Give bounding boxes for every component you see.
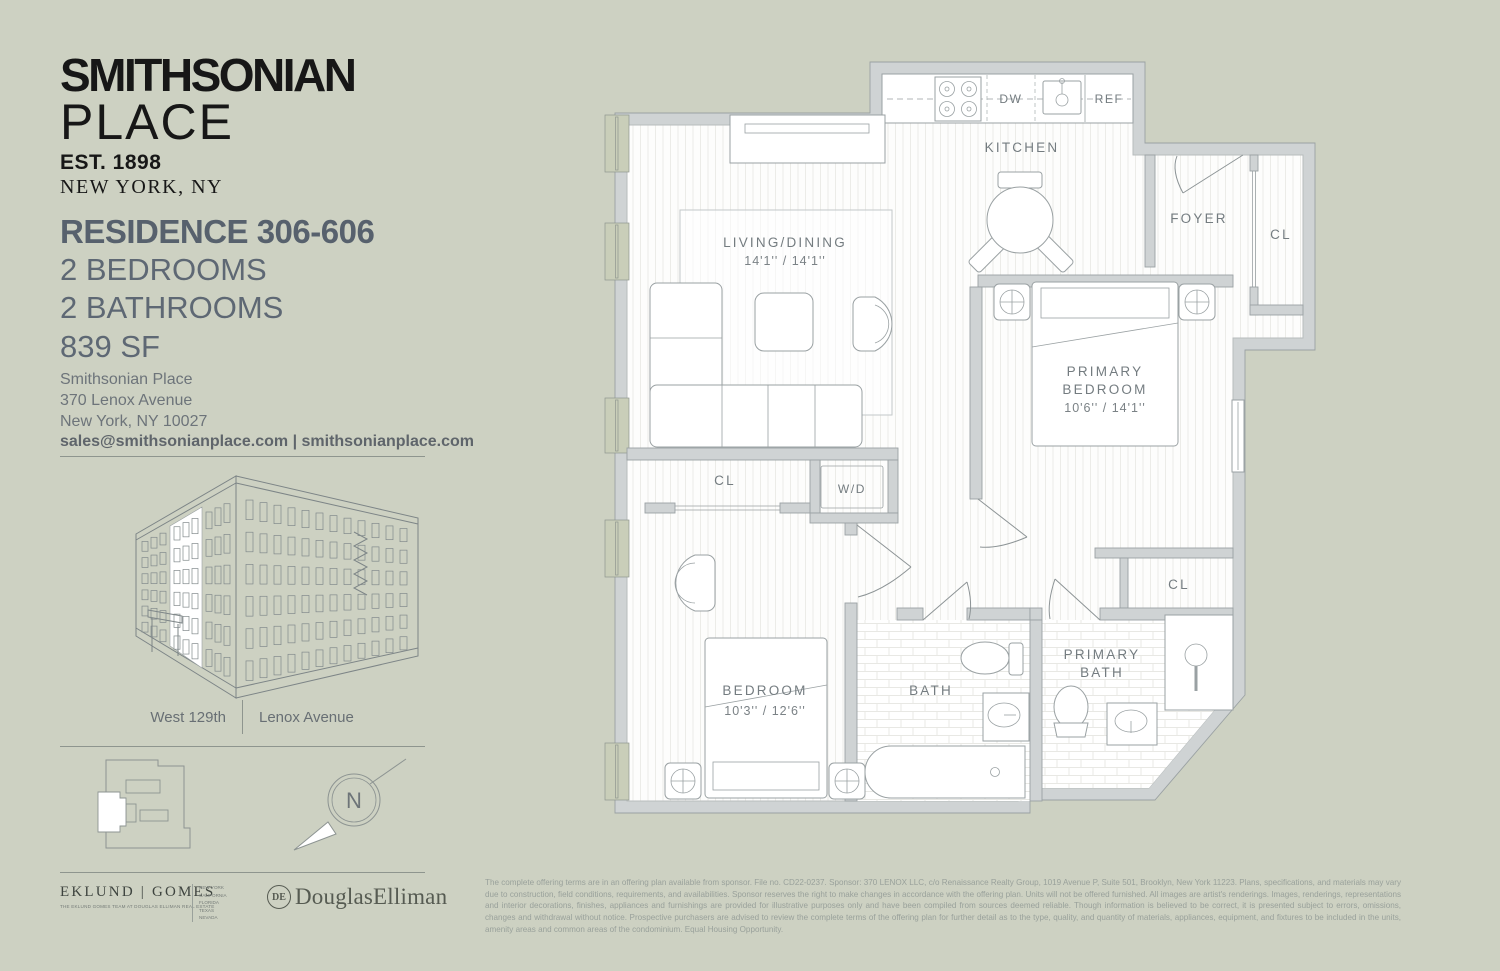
room-label-bath: BATH [909, 683, 953, 698]
site-plan [92, 754, 212, 866]
primary-window [1232, 400, 1244, 472]
sink-icon [983, 693, 1029, 741]
refrigerator-label: REF [1095, 92, 1124, 106]
residence-bedrooms: 2 BEDROOMS [60, 251, 374, 289]
brand-logo: SMITHSONIAN PLACE EST. 1898 NEW YORK, NY [60, 52, 355, 199]
de-monogram-icon: DE [267, 885, 291, 909]
kitchen-counter: DW REF [882, 74, 1133, 123]
room-label-hall-closet: CL [714, 473, 736, 488]
sink-icon [1107, 703, 1157, 745]
room-label-foyer: FOYER [1170, 211, 1228, 226]
douglas-elliman-logo: DE DouglasElliman [267, 884, 447, 910]
contact-name: Smithsonian Place [60, 370, 474, 391]
room-label-primary-bedroom-1: PRIMARY [1067, 364, 1144, 379]
nightstand [994, 284, 1030, 320]
nightstand [829, 763, 865, 799]
brand-name-line2: PLACE [60, 98, 355, 147]
contact-links[interactable]: sales@smithsonianplace.com | smithsonian… [60, 432, 474, 453]
room-label-primary-bath-2: BATH [1080, 665, 1124, 680]
bathtub-icon [865, 746, 1025, 798]
dishwasher-label: DW [999, 92, 1022, 106]
coffee-table [755, 293, 813, 351]
room-label-bedroom: BEDROOM [722, 683, 807, 698]
street-right-label: Lenox Avenue [243, 709, 425, 726]
street-labels: West 129th Lenox Avenue [60, 700, 425, 734]
room-label-primary-bath-1: PRIMARY [1064, 647, 1141, 662]
residence-title: RESIDENCE 306-606 [60, 213, 374, 251]
brand-established: EST. 1898 [60, 151, 355, 175]
contact-city: New York, NY 10027 [60, 412, 474, 433]
flyer-page: SMITHSONIAN PLACE EST. 1898 NEW YORK, NY… [0, 0, 1500, 971]
tv-console [730, 115, 885, 163]
room-dims-bedroom: 10'3'' / 12'6'' [724, 704, 805, 718]
compass-north-label: N [346, 788, 362, 813]
stove-icon [935, 77, 981, 121]
shower-icon [1165, 615, 1233, 710]
douglas-elliman-wordmark: DouglasElliman [295, 884, 447, 910]
brand-city: NEW YORK, NY [60, 176, 355, 199]
brand-name-line1: SMITHSONIAN [60, 52, 355, 98]
room-dims-primary-bedroom: 10'6'' / 14'1'' [1064, 401, 1145, 415]
street-left-label: West 129th [60, 709, 242, 726]
compass-icon: N [282, 756, 414, 864]
room-label-kitchen: KITCHEN [985, 140, 1060, 155]
room-label-washer-dryer: W/D [838, 482, 866, 496]
contact-block: Smithsonian Place 370 Lenox Avenue New Y… [60, 370, 474, 453]
north-arrow [294, 822, 336, 850]
room-label-living: LIVING/DINING [723, 235, 847, 250]
contact-street: 370 Lenox Avenue [60, 391, 474, 412]
divider-top [60, 456, 425, 457]
sink-icon [1043, 79, 1081, 115]
eklund-gomes-regions: NEW YORK CALIFORNIA FLORIDA TEXAS NEVADA [192, 884, 227, 922]
bed [705, 638, 827, 798]
room-label-primary-closet: CL [1168, 577, 1190, 592]
floor-plan: DW REF [595, 55, 1320, 875]
residence-info: RESIDENCE 306-606 2 BEDROOMS 2 BATHROOMS… [60, 213, 374, 366]
disclaimer-text: The complete offering terms are in an of… [485, 877, 1401, 936]
divider-bottom [60, 872, 425, 873]
site-unit-highlight [98, 792, 126, 832]
room-label-primary-bedroom-2: BEDROOM [1062, 382, 1147, 397]
residence-area: 839 SF [60, 328, 374, 366]
nightstand [1179, 284, 1215, 320]
building-illustration [118, 460, 434, 704]
residence-bathrooms: 2 BATHROOMS [60, 289, 374, 327]
toilet-icon [961, 642, 1023, 675]
site-row: N [60, 746, 425, 872]
room-label-foyer-closet: CL [1270, 227, 1292, 242]
toilet-icon [1054, 686, 1088, 737]
room-dims-living: 14'1'' / 14'1'' [744, 254, 825, 268]
nightstand [665, 763, 701, 799]
